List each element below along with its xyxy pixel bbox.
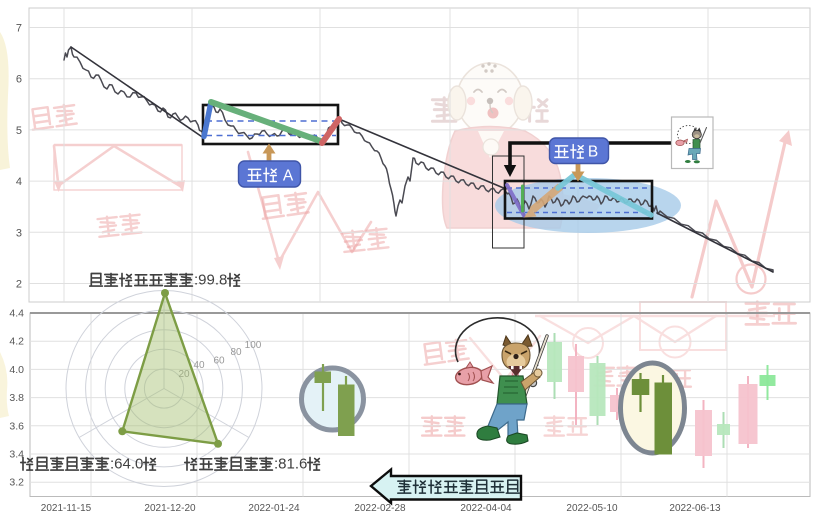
svg-text:5: 5 bbox=[16, 125, 22, 137]
svg-text:7: 7 bbox=[16, 23, 22, 35]
svg-text:2: 2 bbox=[16, 279, 22, 291]
svg-text:2021-11-15: 2021-11-15 bbox=[41, 503, 92, 514]
svg-text:60: 60 bbox=[213, 356, 225, 367]
svg-text::81.6: :81.6 bbox=[274, 456, 307, 473]
svg-text:40: 40 bbox=[193, 360, 205, 371]
svg-text:3: 3 bbox=[16, 227, 22, 239]
svg-text:B: B bbox=[588, 144, 598, 161]
svg-text:2022-01-24: 2022-01-24 bbox=[248, 503, 300, 514]
svg-text:2022-05-10: 2022-05-10 bbox=[566, 503, 618, 514]
svg-text:4.4: 4.4 bbox=[9, 308, 24, 320]
svg-text:3.4: 3.4 bbox=[9, 449, 24, 461]
svg-text::64.0: :64.0 bbox=[110, 456, 143, 473]
svg-text:3.6: 3.6 bbox=[9, 420, 24, 432]
svg-text:100: 100 bbox=[245, 340, 262, 351]
svg-text:2021-12-20: 2021-12-20 bbox=[144, 503, 196, 514]
svg-text:4.0: 4.0 bbox=[9, 364, 24, 376]
svg-text:6: 6 bbox=[16, 74, 22, 86]
svg-text:2022-04-04: 2022-04-04 bbox=[460, 503, 512, 514]
svg-text:3.2: 3.2 bbox=[9, 477, 24, 489]
svg-text:80: 80 bbox=[230, 347, 242, 358]
svg-text:3.8: 3.8 bbox=[9, 392, 24, 404]
svg-text::99.8: :99.8 bbox=[194, 272, 227, 289]
svg-text:A: A bbox=[283, 168, 294, 185]
svg-text:2022-02-28: 2022-02-28 bbox=[354, 503, 406, 514]
svg-text:4.2: 4.2 bbox=[9, 336, 24, 348]
svg-text:4: 4 bbox=[16, 176, 22, 188]
svg-text:2022-06-13: 2022-06-13 bbox=[669, 503, 721, 514]
